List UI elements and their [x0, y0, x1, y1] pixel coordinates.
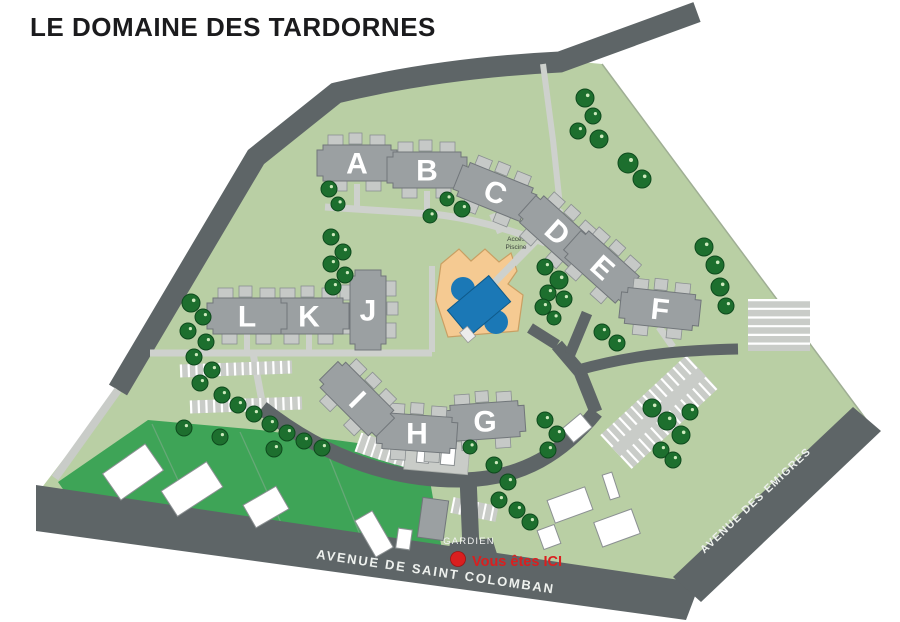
tree-highlight	[275, 445, 278, 448]
tree-highlight	[189, 327, 192, 330]
tree-icon	[182, 294, 200, 312]
tree-highlight	[549, 289, 552, 292]
tree-highlight	[555, 314, 558, 317]
tree-icon	[547, 311, 561, 325]
tree-icon	[335, 244, 351, 260]
tree-highlight	[344, 248, 347, 251]
tree-highlight	[221, 433, 224, 436]
tree-highlight	[662, 446, 665, 449]
building-h-label: H	[406, 418, 428, 451]
tree-highlight	[674, 456, 677, 459]
tree-highlight	[323, 444, 326, 447]
tree-icon	[246, 406, 262, 422]
building-a-label: A	[346, 148, 368, 181]
tree-icon	[537, 412, 553, 428]
tree-icon	[325, 279, 341, 295]
tree-icon	[176, 420, 192, 436]
tree-highlight	[518, 506, 521, 509]
tree-highlight	[204, 313, 207, 316]
tree-icon	[537, 259, 553, 275]
tree-icon	[594, 324, 610, 340]
site-map: Accès Piscine	[0, 0, 900, 622]
tree-icon	[570, 123, 586, 139]
tree-icon	[718, 298, 734, 314]
tree-highlight	[727, 302, 730, 305]
tree-icon	[549, 426, 565, 442]
tree-highlight	[594, 112, 597, 115]
tree-highlight	[643, 175, 647, 179]
tree-highlight	[332, 260, 335, 263]
tree-icon	[682, 404, 698, 420]
site-plan-page: LE DOMAINE DES TARDORNES	[0, 0, 900, 622]
tree-highlight	[495, 461, 498, 464]
tree-highlight	[558, 430, 561, 433]
tree-highlight	[448, 195, 451, 198]
tree-highlight	[500, 496, 503, 499]
tree-highlight	[332, 233, 335, 236]
building-l-label: L	[238, 301, 256, 334]
tree-highlight	[305, 437, 308, 440]
tree-icon	[214, 387, 230, 403]
tree-icon	[535, 299, 551, 315]
tree-highlight	[213, 366, 216, 369]
tree-icon	[321, 181, 337, 197]
tree-highlight	[346, 271, 349, 274]
tree-highlight	[544, 303, 547, 306]
guard-house-label: GARDIEN	[443, 536, 495, 547]
tree-icon	[658, 412, 676, 430]
tree-icon	[509, 502, 525, 518]
tree-highlight	[565, 295, 568, 298]
tree-icon	[212, 429, 228, 445]
tree-icon	[609, 335, 625, 351]
tree-highlight	[239, 401, 242, 404]
tree-icon	[672, 426, 690, 444]
tree-icon	[500, 474, 516, 490]
tree-highlight	[509, 478, 512, 481]
tree-highlight	[339, 200, 342, 203]
building-f-label: F	[649, 293, 671, 328]
tree-highlight	[334, 283, 337, 286]
you-are-here-dot	[451, 552, 466, 567]
tree-highlight	[192, 299, 196, 303]
tree-icon	[486, 457, 502, 473]
tree-icon	[585, 108, 601, 124]
tree-highlight	[431, 212, 434, 215]
tree-highlight	[471, 443, 474, 446]
tree-icon	[262, 416, 278, 432]
tree-highlight	[691, 408, 694, 411]
tree-highlight	[546, 263, 549, 266]
tree-highlight	[560, 276, 564, 280]
building-k-label: K	[298, 301, 320, 334]
building-b-label: B	[416, 155, 438, 188]
tree-highlight	[653, 404, 657, 408]
tree-highlight	[463, 205, 466, 208]
tree-highlight	[629, 158, 633, 162]
tree-icon	[323, 256, 339, 272]
tree-icon	[454, 201, 470, 217]
tree-icon	[633, 170, 651, 188]
tree-icon	[266, 441, 282, 457]
tree-highlight	[195, 353, 198, 356]
tree-highlight	[185, 424, 188, 427]
tree-highlight	[549, 446, 552, 449]
tree-icon	[440, 192, 454, 206]
tree-highlight	[201, 379, 204, 382]
building-g-label: G	[473, 406, 496, 439]
tree-icon	[198, 334, 214, 350]
tree-highlight	[223, 391, 226, 394]
tree-icon	[279, 425, 295, 441]
tree-icon	[643, 399, 661, 417]
tree-icon	[230, 397, 246, 413]
tree-icon	[618, 153, 638, 173]
tree-icon	[711, 278, 729, 296]
tree-highlight	[531, 518, 534, 521]
tree-icon	[423, 209, 437, 223]
tree-highlight	[586, 94, 590, 98]
tree-icon	[556, 291, 572, 307]
building-j-label: J	[360, 295, 377, 328]
tree-icon	[463, 440, 477, 454]
tree-icon	[540, 442, 556, 458]
guard-house	[417, 497, 448, 540]
tree-highlight	[579, 127, 582, 130]
tree-highlight	[721, 283, 725, 287]
tree-icon	[192, 375, 208, 391]
tree-icon	[695, 238, 713, 256]
tree-icon	[323, 229, 339, 245]
tree-highlight	[603, 328, 606, 331]
tree-highlight	[682, 431, 686, 435]
tree-icon	[186, 349, 202, 365]
tree-highlight	[600, 135, 604, 139]
tree-icon	[590, 130, 608, 148]
tree-icon	[314, 440, 330, 456]
tree-icon	[491, 492, 507, 508]
tree-highlight	[255, 410, 258, 413]
tree-icon	[665, 452, 681, 468]
tree-icon	[296, 433, 312, 449]
tree-icon	[706, 256, 724, 274]
tree-highlight	[207, 338, 210, 341]
tree-icon	[522, 514, 538, 530]
tree-highlight	[705, 243, 709, 247]
tree-highlight	[330, 185, 333, 188]
tree-icon	[576, 89, 594, 107]
tree-highlight	[288, 429, 291, 432]
tree-highlight	[716, 261, 720, 265]
pool-access-label-line2: Piscine	[506, 244, 527, 251]
tree-icon	[180, 323, 196, 339]
tree-icon	[204, 362, 220, 378]
tree-highlight	[271, 420, 274, 423]
tree-highlight	[668, 417, 672, 421]
tree-highlight	[546, 416, 549, 419]
tree-highlight	[618, 339, 621, 342]
you-are-here-label: Vous êtes ICI	[472, 554, 562, 570]
tree-icon	[331, 197, 345, 211]
tree-icon	[337, 267, 353, 283]
tree-icon	[195, 309, 211, 325]
